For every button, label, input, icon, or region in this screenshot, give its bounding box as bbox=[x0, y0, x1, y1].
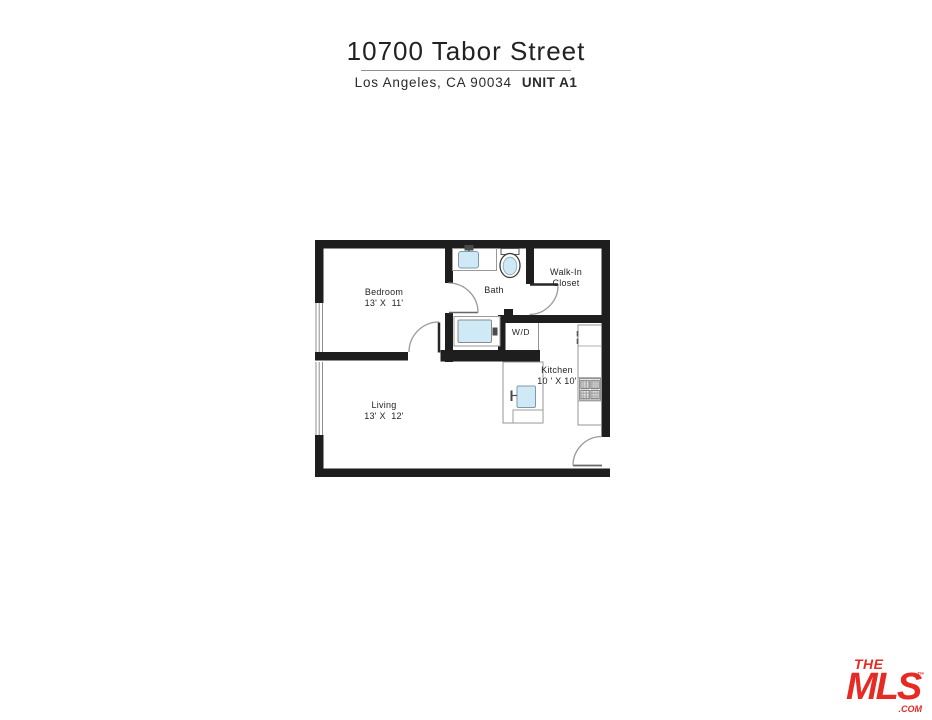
city-state-zip: Los Angeles, CA 90034 bbox=[355, 75, 512, 90]
label-walk-in-closet: Walk-In Closet bbox=[534, 267, 598, 289]
bathtub bbox=[454, 317, 500, 347]
header: 10700 Tabor Street Los Angeles, CA 90034… bbox=[0, 36, 932, 105]
logo-com-text: .COM bbox=[899, 704, 923, 714]
label-living: Living 13' X 12' bbox=[334, 400, 434, 422]
window-living bbox=[315, 362, 325, 435]
label-kitchen: Kitchen 10 ' X 10' bbox=[517, 365, 597, 387]
unit-label: UNIT A1 bbox=[522, 75, 578, 90]
bedroom-door bbox=[409, 322, 439, 353]
entry-door bbox=[573, 437, 602, 466]
label-bedroom: Bedroom 13' X 11' bbox=[334, 287, 434, 309]
themls-logo: THE MLS ™ .COM bbox=[844, 656, 924, 714]
title-divider bbox=[361, 70, 571, 71]
address-title: 10700 Tabor Street bbox=[347, 36, 586, 67]
closet-door bbox=[530, 285, 559, 315]
toilet bbox=[500, 249, 520, 278]
logo-mls-text: MLS bbox=[846, 666, 920, 709]
label-bath: Bath bbox=[469, 285, 519, 296]
vanity-sink bbox=[453, 245, 497, 271]
subtitle: Los Angeles, CA 90034UNIT A1 bbox=[0, 75, 932, 105]
label-wd: W/D bbox=[503, 327, 539, 338]
logo-trademark: ™ bbox=[917, 672, 924, 679]
window-bedroom bbox=[315, 303, 325, 352]
floorplan-page: 10700 Tabor Street Los Angeles, CA 90034… bbox=[0, 0, 932, 720]
